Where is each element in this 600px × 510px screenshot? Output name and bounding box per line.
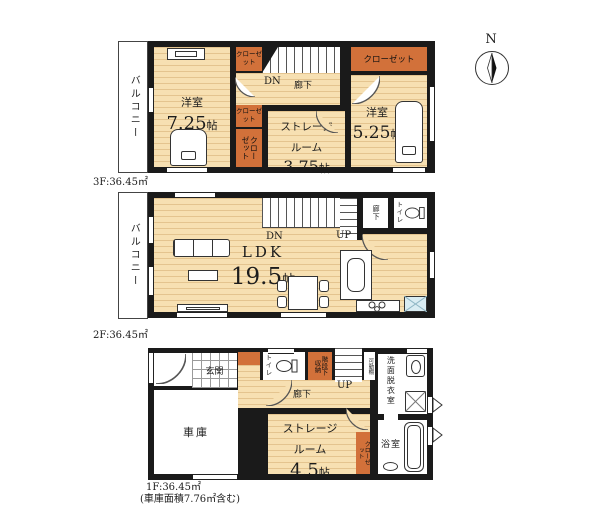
room-size: 3.75 bbox=[283, 157, 319, 176]
room-name-line2: ルーム bbox=[291, 142, 322, 154]
garage-label: 車庫 bbox=[183, 424, 209, 440]
window bbox=[177, 312, 227, 318]
dn-label-2f: DN bbox=[266, 231, 283, 242]
room-name-line1: ストレージ bbox=[283, 422, 338, 435]
toilet-room-1f: トイレ bbox=[263, 352, 305, 380]
balcony-3f: バルコニー bbox=[118, 41, 148, 173]
tv-board-icon bbox=[177, 304, 228, 312]
floor-3f: 洋室 7.25帖 クローゼット DN 廊下 クローゼット クローゼット ストレー… bbox=[148, 41, 435, 173]
hall-1f-label: 廊下 bbox=[293, 387, 311, 400]
toilet-2f-label: トイレ bbox=[395, 201, 402, 224]
up-label-1f: UP bbox=[337, 380, 352, 391]
closet-3f-b: クローゼット bbox=[236, 105, 262, 127]
door-arc bbox=[235, 77, 255, 97]
pillow-icon bbox=[402, 146, 416, 155]
balcony-2f-label: バルコニー bbox=[128, 223, 139, 288]
entrance-1f: 玄関 bbox=[192, 353, 237, 388]
movable-shelf-label: 可動棚 bbox=[367, 358, 373, 375]
room-name-line2: ルーム bbox=[294, 443, 327, 456]
balcony-3f-label: バルコニー bbox=[128, 75, 139, 140]
door-arc bbox=[156, 354, 186, 384]
washing-machine-icon bbox=[405, 391, 426, 412]
coffee-table-icon bbox=[188, 270, 218, 281]
stove-icon bbox=[365, 301, 391, 312]
toilet-1f-label: トイレ bbox=[264, 354, 271, 377]
chair-icon bbox=[319, 280, 329, 292]
dresser-icon bbox=[167, 48, 205, 60]
window bbox=[148, 267, 154, 295]
window bbox=[167, 167, 207, 173]
washroom-1f: 洗面脱衣室 bbox=[378, 354, 427, 414]
bathtub-icon bbox=[404, 422, 424, 472]
chair-icon bbox=[277, 280, 287, 292]
hall-2f-label: 廊下 bbox=[372, 205, 379, 221]
door-arc bbox=[266, 380, 292, 406]
chair-icon bbox=[277, 296, 287, 308]
floor-2f: 廊下 トイレ DN UP LDK 19.5帖 bbox=[148, 192, 435, 318]
dining-table-icon bbox=[288, 276, 318, 310]
hall-2f: 廊下 bbox=[363, 198, 388, 228]
window bbox=[429, 87, 435, 141]
stairs-2f bbox=[262, 198, 340, 228]
washroom-label: 洗面脱衣室 bbox=[386, 356, 394, 412]
compass-north-label: N bbox=[471, 32, 511, 47]
compass-icon bbox=[473, 49, 511, 87]
area-note-1f: (車庫面積7.76㎡含む) bbox=[140, 490, 240, 505]
closet-3f-a: クローゼット bbox=[236, 47, 262, 71]
closet-3f-c: クローゼット bbox=[236, 129, 262, 167]
toilet-room-2f: トイレ bbox=[394, 198, 427, 228]
room-size: 19.5 bbox=[231, 264, 282, 290]
area-label-3f: 3F:36.45㎡ bbox=[93, 173, 148, 188]
window bbox=[429, 252, 435, 278]
understairs-storage-label: 階段下収納 bbox=[313, 355, 327, 377]
room-size-unit: 帖 bbox=[319, 466, 330, 479]
entrance-doorway-1f bbox=[154, 353, 192, 386]
window bbox=[148, 217, 154, 243]
sofa-icon bbox=[173, 239, 230, 257]
entrance-door-opening bbox=[148, 353, 154, 383]
sink-basin-icon bbox=[411, 360, 421, 374]
shoe-cabinet-icon bbox=[238, 352, 260, 365]
hall-3f-label: 廊下 bbox=[294, 78, 312, 91]
bath-door-opening bbox=[384, 414, 398, 420]
window bbox=[393, 167, 425, 173]
stove-counter bbox=[356, 300, 400, 312]
bath-stool-icon bbox=[383, 462, 398, 471]
room-name: LDK bbox=[242, 243, 284, 261]
closet-1f: クローゼット bbox=[356, 432, 370, 474]
window bbox=[175, 192, 215, 198]
bathroom-1f: 浴室 bbox=[378, 420, 427, 474]
toilet-icon bbox=[404, 205, 426, 221]
room-bedroom1-3f: 洋室 7.25帖 bbox=[154, 47, 230, 167]
entrance-1f-label: 玄関 bbox=[205, 364, 223, 377]
room-name: 洋室 bbox=[181, 96, 203, 109]
chair-icon bbox=[319, 296, 329, 308]
door-arc bbox=[352, 76, 380, 104]
toilet-icon bbox=[275, 358, 299, 374]
kitchen-sink-icon bbox=[347, 258, 365, 292]
garage-1f: 車庫 bbox=[154, 390, 238, 474]
kitchen-counter bbox=[340, 250, 372, 300]
up-label-2f: UP bbox=[336, 230, 351, 241]
dn-label-3f: DN bbox=[264, 76, 281, 87]
pillow-icon bbox=[181, 151, 196, 160]
bed-icon bbox=[395, 101, 423, 163]
bathroom-label: 浴室 bbox=[381, 437, 401, 450]
floorplan-canvas: N バルコニー 3F:36.45㎡ 洋室 7.25帖 クローゼット bbox=[0, 0, 600, 510]
room-size: 4.5 bbox=[290, 460, 319, 481]
bathtub-inner-icon bbox=[407, 425, 421, 469]
stair-wedge bbox=[262, 47, 278, 73]
room-name: 洋室 bbox=[366, 106, 388, 119]
stairs-1f bbox=[335, 348, 362, 382]
understairs-storage-1f: 階段下収納 bbox=[308, 352, 332, 380]
closet-3f-top: クローゼット bbox=[351, 47, 427, 71]
closet-label: クローゼット bbox=[241, 133, 258, 163]
balcony-2f: バルコニー bbox=[118, 192, 148, 319]
door-arc bbox=[346, 408, 368, 430]
tiled-area-icon bbox=[404, 296, 427, 312]
dresser-top-icon bbox=[175, 51, 197, 57]
door-arc bbox=[316, 111, 338, 133]
closet-label: クローゼット bbox=[363, 53, 414, 65]
movable-shelf-1f: 可動棚 bbox=[364, 352, 375, 380]
window bbox=[148, 88, 154, 112]
sink-icon bbox=[406, 355, 425, 377]
room-size-unit: 帖 bbox=[319, 162, 330, 175]
bed-icon bbox=[170, 129, 207, 166]
room-size: 5.25 bbox=[353, 123, 391, 143]
tv-icon bbox=[186, 307, 220, 310]
closet-label: クローゼット bbox=[357, 440, 370, 466]
door-swing-mark bbox=[433, 427, 443, 443]
window bbox=[281, 312, 326, 318]
room-size-unit: 帖 bbox=[207, 119, 218, 132]
window bbox=[268, 348, 294, 354]
floor-1f: 玄関 廊下 トイレ 階段下収納 UP 可動棚 洗面脱衣室 bbox=[148, 348, 433, 480]
closet-label: クローゼット bbox=[236, 108, 262, 124]
door-swing-mark bbox=[433, 397, 443, 413]
window bbox=[407, 348, 427, 354]
closet-label: クローゼット bbox=[236, 51, 262, 67]
area-label-2f: 2F:36.45㎡ bbox=[93, 326, 148, 341]
